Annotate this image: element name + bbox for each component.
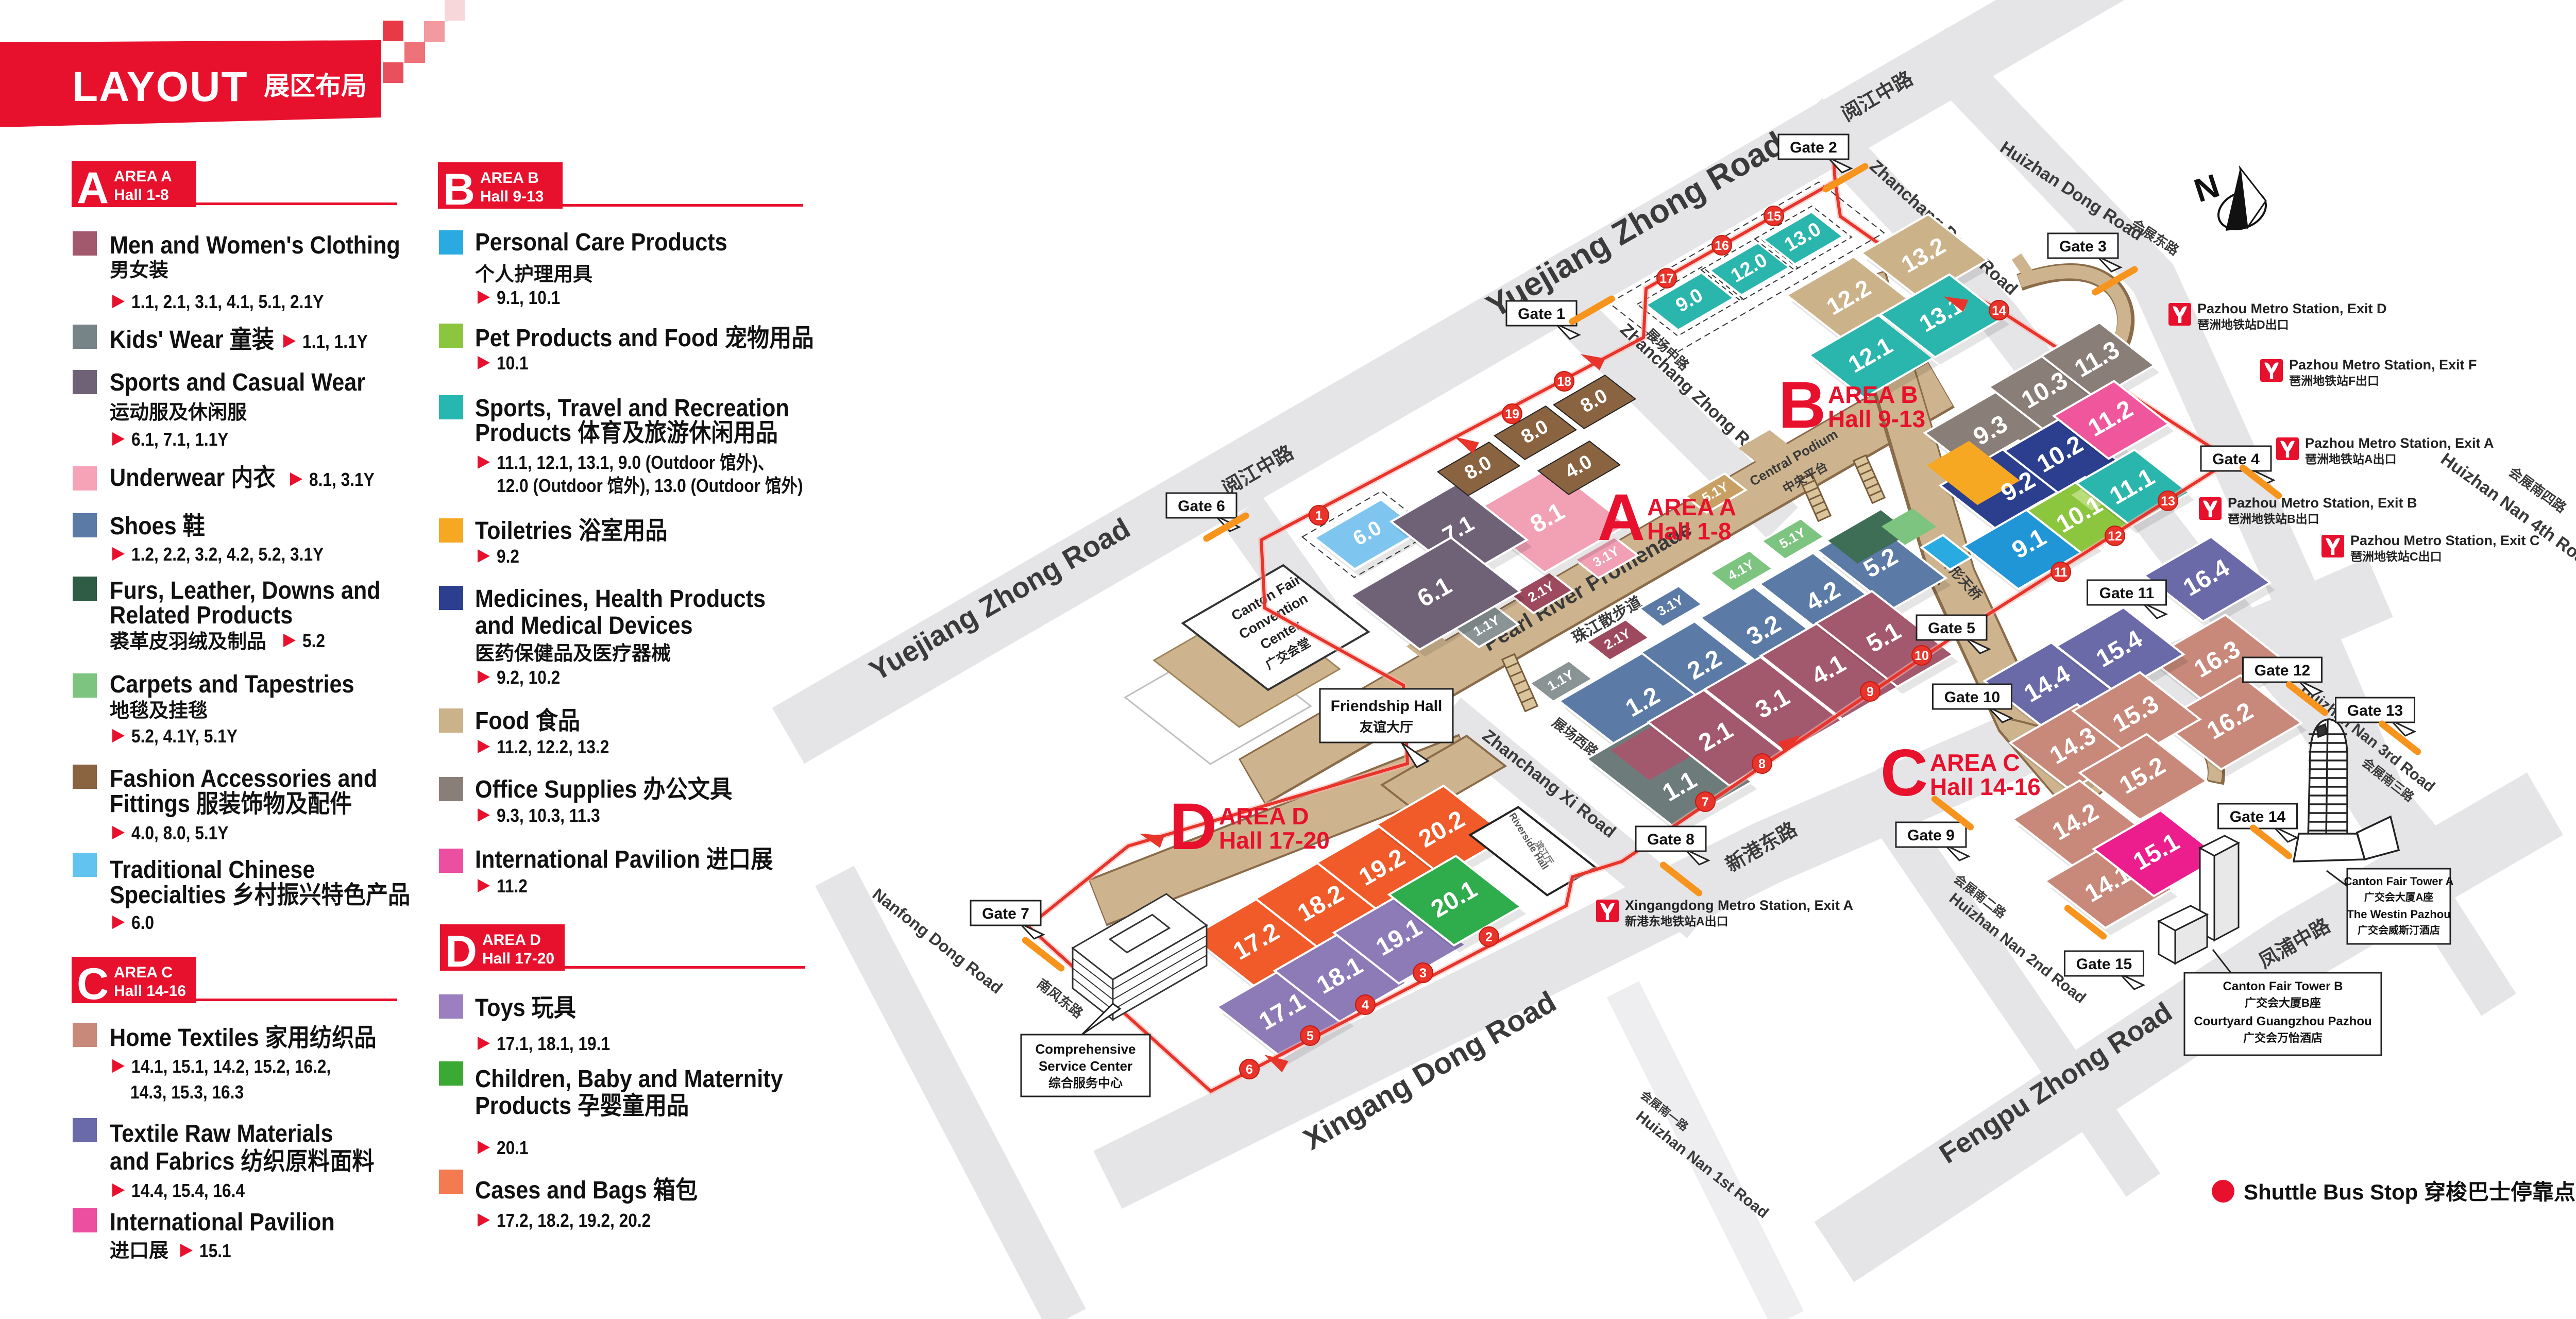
svg-text:Pazhou Metro Station, Exit D: Pazhou Metro Station, Exit D bbox=[2197, 301, 2387, 316]
svg-text:AREA D: AREA D bbox=[1219, 803, 1309, 830]
svg-text:9.1, 10.1: 9.1, 10.1 bbox=[497, 288, 560, 308]
svg-text:17: 17 bbox=[1659, 272, 1674, 286]
svg-text:19: 19 bbox=[1505, 407, 1519, 421]
svg-text:Hall 17-20: Hall 17-20 bbox=[482, 950, 554, 967]
svg-text:C: C bbox=[77, 959, 109, 1009]
svg-text:Gate 1: Gate 1 bbox=[1518, 306, 1565, 323]
svg-text:Personal Care Products: Personal Care Products bbox=[475, 228, 727, 256]
svg-text:Shuttle Bus Stop 穿梭巴士停靠点: Shuttle Bus Stop 穿梭巴士停靠点 bbox=[2244, 1180, 2575, 1204]
svg-text:A: A bbox=[77, 163, 109, 213]
svg-text:Gate 7: Gate 7 bbox=[982, 905, 1029, 922]
svg-text:4: 4 bbox=[1362, 998, 1369, 1012]
svg-text:新港东地铁站A出口: 新港东地铁站A出口 bbox=[1625, 915, 1728, 928]
svg-text:Food 食品: Food 食品 bbox=[475, 707, 580, 735]
svg-text:琶洲地铁站C出口: 琶洲地铁站C出口 bbox=[2350, 550, 2442, 563]
svg-text:Textile Raw Materials: Textile Raw Materials bbox=[110, 1120, 333, 1147]
svg-text:1.1, 1.1Y: 1.1, 1.1Y bbox=[302, 331, 368, 352]
svg-text:20.1: 20.1 bbox=[497, 1138, 529, 1158]
svg-text:Shoes 鞋: Shoes 鞋 bbox=[110, 512, 205, 540]
svg-text:C: C bbox=[1880, 736, 1928, 810]
svg-text:12.0 (Outdoor 馆外), 13.0 (Outdo: 12.0 (Outdoor 馆外), 13.0 (Outdoor 馆外) bbox=[497, 476, 803, 496]
svg-text:Gate 4: Gate 4 bbox=[2212, 451, 2260, 468]
svg-text:Hall 9-13: Hall 9-13 bbox=[480, 188, 544, 205]
svg-text:Sports and Casual Wear: Sports and Casual Wear bbox=[110, 368, 365, 396]
svg-text:AREA D: AREA D bbox=[482, 932, 541, 949]
svg-text:Hall 14-16: Hall 14-16 bbox=[114, 983, 186, 1000]
svg-text:Gate 14: Gate 14 bbox=[2230, 808, 2286, 825]
svg-text:B: B bbox=[443, 165, 475, 214]
svg-text:9: 9 bbox=[1867, 685, 1874, 699]
svg-text:Gate 12: Gate 12 bbox=[2255, 662, 2310, 679]
svg-text:进口展: 进口展 bbox=[110, 1240, 168, 1262]
svg-text:Pazhou Metro Station, Exit C: Pazhou Metro Station, Exit C bbox=[2350, 533, 2540, 548]
svg-text:Hall 14-16: Hall 14-16 bbox=[1930, 773, 2041, 800]
svg-text:Friendship Hall: Friendship Hall bbox=[1331, 698, 1443, 715]
svg-text:运动服及休闲服: 运动服及休闲服 bbox=[110, 402, 247, 424]
svg-text:Sports, Travel and Recreation: Sports, Travel and Recreation bbox=[475, 394, 789, 422]
svg-text:4.0, 8.0, 5.1Y: 4.0, 8.0, 5.1Y bbox=[131, 823, 229, 843]
svg-text:Pazhou Metro Station, Exit B: Pazhou Metro Station, Exit B bbox=[2228, 495, 2417, 511]
svg-text:琶洲地铁站F出口: 琶洲地铁站F出口 bbox=[2289, 374, 2379, 387]
svg-text:Gate 5: Gate 5 bbox=[1928, 620, 1975, 637]
svg-text:琶洲地铁站D出口: 琶洲地铁站D出口 bbox=[2197, 318, 2289, 331]
svg-text:Canton Fair Tower B: Canton Fair Tower B bbox=[2223, 979, 2343, 993]
svg-text:14.3, 15.3, 16.3: 14.3, 15.3, 16.3 bbox=[130, 1082, 244, 1103]
svg-text:International Pavilion 进口展: International Pavilion 进口展 bbox=[475, 845, 773, 873]
svg-text:11.1, 12.1, 13.1, 9.0 (Outdoor: 11.1, 12.1, 13.1, 9.0 (Outdoor 馆外)、 bbox=[497, 452, 774, 473]
svg-text:Traditional Chinese: Traditional Chinese bbox=[110, 856, 315, 884]
svg-text:Service Center: Service Center bbox=[1039, 1058, 1132, 1074]
svg-text:Toys 玩具: Toys 玩具 bbox=[475, 994, 576, 1022]
svg-text:Canton Fair Tower A: Canton Fair Tower A bbox=[2344, 875, 2454, 888]
svg-text:琶洲地铁站B出口: 琶洲地铁站B出口 bbox=[2228, 512, 2319, 526]
svg-text:6.0: 6.0 bbox=[131, 912, 154, 933]
svg-text:AREA C: AREA C bbox=[114, 964, 173, 981]
svg-text:裘革皮羽绒及制品: 裘革皮羽绒及制品 bbox=[110, 631, 266, 653]
svg-text:Gate 8: Gate 8 bbox=[1647, 831, 1694, 848]
svg-text:1.1, 2.1, 3.1, 4.1, 5.1, 2.1Y: 1.1, 2.1, 3.1, 4.1, 5.1, 2.1Y bbox=[131, 292, 324, 312]
svg-text:8: 8 bbox=[1758, 757, 1766, 771]
svg-text:18: 18 bbox=[1557, 375, 1571, 389]
svg-text:Medicines, Health Products: Medicines, Health Products bbox=[475, 585, 766, 613]
svg-text:AREA A: AREA A bbox=[114, 168, 172, 185]
svg-text:B: B bbox=[1778, 368, 1826, 442]
svg-text:Pazhou Metro Station, Exit F: Pazhou Metro Station, Exit F bbox=[2289, 357, 2477, 373]
svg-text:Hall 1-8: Hall 1-8 bbox=[1647, 518, 1732, 545]
svg-text:Gate 2: Gate 2 bbox=[1790, 139, 1837, 156]
svg-text:Pazhou Metro Station, Exit A: Pazhou Metro Station, Exit A bbox=[2305, 435, 2494, 451]
svg-text:Gate 9: Gate 9 bbox=[1907, 827, 1955, 844]
svg-text:2: 2 bbox=[1485, 930, 1493, 944]
svg-text:Office Supplies 办公文具: Office Supplies 办公文具 bbox=[475, 775, 733, 803]
svg-text:Products 孕婴童用品: Products 孕婴童用品 bbox=[475, 1092, 689, 1120]
svg-text:15.1: 15.1 bbox=[199, 1241, 231, 1261]
svg-text:10.1: 10.1 bbox=[497, 353, 529, 374]
svg-text:10: 10 bbox=[1914, 649, 1929, 663]
svg-text:Hall 1-8: Hall 1-8 bbox=[114, 187, 169, 204]
svg-text:13: 13 bbox=[2161, 494, 2175, 509]
svg-text:5.2: 5.2 bbox=[302, 631, 325, 651]
svg-text:8.1, 3.1Y: 8.1, 3.1Y bbox=[309, 469, 375, 490]
svg-text:Products 体育及旅游休闲用品: Products 体育及旅游休闲用品 bbox=[475, 419, 778, 447]
svg-text:and Medical Devices: and Medical Devices bbox=[475, 612, 693, 639]
svg-text:Gate 11: Gate 11 bbox=[2099, 585, 2155, 602]
svg-text:Pet Products and Food 宠物用品: Pet Products and Food 宠物用品 bbox=[475, 324, 814, 352]
svg-text:医药保健品及医疗器械: 医药保健品及医疗器械 bbox=[475, 643, 671, 665]
svg-text:Children, Baby and Maternity: Children, Baby and Maternity bbox=[475, 1065, 783, 1093]
svg-text:Courtyard Guangzhou Pazhou: Courtyard Guangzhou Pazhou bbox=[2194, 1014, 2371, 1028]
svg-text:14: 14 bbox=[1992, 303, 2006, 318]
svg-text:The Westin Pazhou: The Westin Pazhou bbox=[2347, 908, 2450, 921]
svg-text:Fittings 服装饰物及配件: Fittings 服装饰物及配件 bbox=[110, 790, 352, 818]
svg-text:17.1, 18.1, 19.1: 17.1, 18.1, 19.1 bbox=[497, 1034, 610, 1054]
svg-text:5.2, 4.1Y, 5.1Y: 5.2, 4.1Y, 5.1Y bbox=[131, 726, 238, 747]
svg-text:Home Textiles 家用纺织品: Home Textiles 家用纺织品 bbox=[110, 1024, 377, 1052]
svg-text:6: 6 bbox=[1246, 1062, 1253, 1077]
svg-text:and Fabrics 纺织原料面料: and Fabrics 纺织原料面料 bbox=[110, 1147, 375, 1175]
svg-text:11.2, 12.2, 13.2: 11.2, 12.2, 13.2 bbox=[497, 737, 609, 757]
svg-text:AREA A: AREA A bbox=[1647, 494, 1736, 520]
svg-text:Specialties 乡村振兴特色产品: Specialties 乡村振兴特色产品 bbox=[110, 881, 410, 909]
svg-text:Carpets and Tapestries: Carpets and Tapestries bbox=[110, 670, 354, 698]
svg-text:A: A bbox=[1598, 481, 1645, 554]
svg-text:9.2: 9.2 bbox=[497, 546, 519, 567]
svg-text:Gate 6: Gate 6 bbox=[1178, 498, 1225, 515]
svg-text:9.3, 10.3, 11.3: 9.3, 10.3, 11.3 bbox=[497, 805, 600, 826]
svg-text:Hall 9-13: Hall 9-13 bbox=[1828, 405, 1925, 432]
svg-text:广交会大厦B座: 广交会大厦B座 bbox=[2245, 996, 2321, 1009]
svg-text:Gate 10: Gate 10 bbox=[1944, 689, 2000, 706]
svg-text:AREA B: AREA B bbox=[1828, 381, 1918, 408]
svg-text:友谊大厅: 友谊大厅 bbox=[1360, 719, 1413, 735]
svg-text:Gate 13: Gate 13 bbox=[2347, 702, 2403, 719]
svg-text:14.4, 15.4, 16.4: 14.4, 15.4, 16.4 bbox=[131, 1180, 245, 1201]
svg-text:广交会大厦A座: 广交会大厦A座 bbox=[2364, 891, 2433, 903]
svg-text:Xingangdong Metro Station, Exi: Xingangdong Metro Station, Exit A bbox=[1625, 898, 1853, 913]
svg-text:D: D bbox=[445, 927, 477, 976]
svg-text:1: 1 bbox=[1315, 509, 1323, 523]
svg-text:Fashion Accessories and: Fashion Accessories and bbox=[110, 765, 377, 792]
svg-text:Furs, Leather, Downs and: Furs, Leather, Downs and bbox=[110, 577, 381, 604]
svg-text:Kids' Wear 童装: Kids' Wear 童装 bbox=[110, 326, 274, 353]
svg-text:综合服务中心: 综合服务中心 bbox=[1048, 1076, 1123, 1090]
svg-text:男女装: 男女装 bbox=[110, 259, 168, 281]
svg-text:International Pavilion: International Pavilion bbox=[110, 1208, 335, 1236]
svg-text:个人护理用具: 个人护理用具 bbox=[475, 264, 592, 285]
svg-text:展区布局: 展区布局 bbox=[264, 72, 367, 100]
svg-text:Toiletries 浴室用品: Toiletries 浴室用品 bbox=[475, 517, 668, 545]
svg-text:11.2: 11.2 bbox=[497, 876, 528, 897]
svg-text:9.2, 10.2: 9.2, 10.2 bbox=[497, 667, 560, 688]
svg-text:Hall 17-20: Hall 17-20 bbox=[1219, 827, 1330, 854]
svg-text:17.2, 18.2, 19.2, 20.2: 17.2, 18.2, 19.2, 20.2 bbox=[497, 1210, 651, 1231]
svg-text:14.1, 15.1, 14.2, 15.2, 16.2,: 14.1, 15.1, 14.2, 15.2, 16.2, bbox=[131, 1056, 331, 1077]
svg-text:7: 7 bbox=[1702, 795, 1709, 809]
svg-text:D: D bbox=[1170, 790, 1217, 864]
svg-text:5: 5 bbox=[1307, 1029, 1314, 1043]
svg-text:Related Products: Related Products bbox=[110, 601, 293, 629]
svg-text:琶洲地铁站A出口: 琶洲地铁站A出口 bbox=[2305, 452, 2397, 466]
svg-text:1.2, 2.2, 3.2, 4.2, 5.2, 3.1Y: 1.2, 2.2, 3.2, 4.2, 5.2, 3.1Y bbox=[131, 544, 324, 565]
svg-text:地毯及挂毯: 地毯及挂毯 bbox=[110, 700, 208, 722]
svg-text:11: 11 bbox=[2054, 565, 2068, 580]
svg-text:Comprehensive: Comprehensive bbox=[1035, 1041, 1136, 1057]
svg-text:Gate 3: Gate 3 bbox=[2059, 238, 2107, 255]
svg-text:广交会威斯汀酒店: 广交会威斯汀酒店 bbox=[2358, 924, 2440, 936]
svg-text:16: 16 bbox=[1715, 239, 1729, 253]
svg-text:Men and Women's Clothing: Men and Women's Clothing bbox=[110, 231, 400, 259]
svg-text:3: 3 bbox=[1419, 966, 1427, 980]
svg-text:Underwear 内衣: Underwear 内衣 bbox=[110, 464, 276, 492]
svg-text:LAYOUT: LAYOUT bbox=[72, 63, 248, 110]
svg-text:AREA B: AREA B bbox=[480, 170, 539, 187]
svg-text:15: 15 bbox=[1767, 209, 1781, 224]
svg-text:12: 12 bbox=[2108, 529, 2122, 544]
svg-text:广交会万怡酒店: 广交会万怡酒店 bbox=[2243, 1031, 2323, 1044]
svg-text:Cases and Bags 箱包: Cases and Bags 箱包 bbox=[475, 1176, 698, 1204]
svg-text:Gate 15: Gate 15 bbox=[2076, 956, 2132, 973]
svg-text:AREA C: AREA C bbox=[1930, 749, 2020, 776]
svg-text:6.1, 7.1, 1.1Y: 6.1, 7.1, 1.1Y bbox=[131, 429, 229, 450]
